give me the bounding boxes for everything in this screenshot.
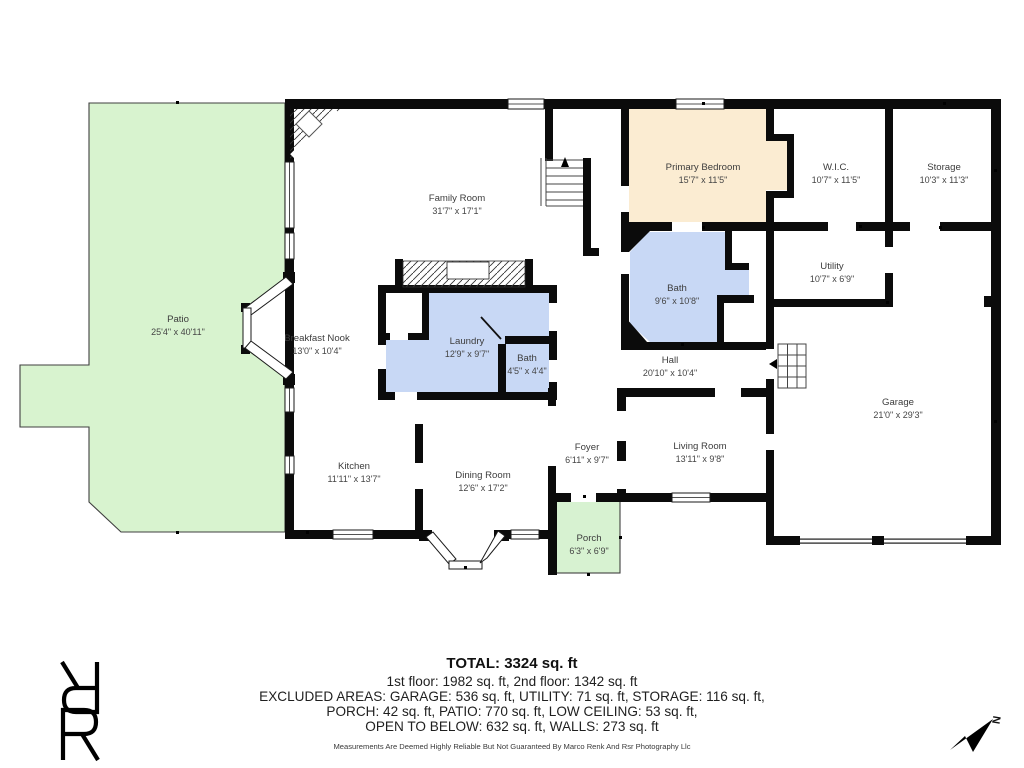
svg-text:9'6" x 10'8": 9'6" x 10'8": [655, 296, 699, 306]
room-wic: W.I.C.10'7" x 11'5": [812, 162, 861, 185]
floor-plan-page: Patio25'4" x 40'11" Family Room31'7" x 1…: [0, 0, 1024, 768]
svg-text:W.I.C.: W.I.C.: [823, 162, 849, 173]
window-icon: [511, 530, 539, 539]
garage-door: [800, 536, 966, 545]
summary-floors: 1st floor: 1982 sq. ft, 2nd floor: 1342 …: [387, 674, 638, 689]
summary-excluded-1: EXCLUDED AREAS: GARAGE: 536 sq. ft, UTIL…: [259, 689, 765, 704]
room-hall: Hall20'10" x 10'4": [643, 355, 697, 378]
svg-text:6'3" x 6'9": 6'3" x 6'9": [569, 546, 608, 556]
svg-text:Dining Room: Dining Room: [455, 470, 510, 481]
svg-text:Patio: Patio: [167, 314, 189, 325]
bay-window-icon: [426, 531, 505, 569]
svg-text:10'7" x 6'9": 10'7" x 6'9": [810, 274, 854, 284]
summary-excluded-3: OPEN TO BELOW: 632 sq. ft, WALLS: 273 sq…: [365, 719, 659, 734]
walls: [241, 99, 1001, 575]
svg-text:Foyer: Foyer: [575, 442, 600, 453]
svg-text:Hall: Hall: [662, 355, 679, 366]
stairs-up-arrow-icon: [561, 157, 569, 167]
svg-text:Utility: Utility: [820, 261, 844, 272]
svg-text:Laundry: Laundry: [450, 336, 485, 347]
fireplace-icon: [403, 261, 525, 287]
room-family-room: Family Room31'7" x 17'1": [429, 193, 486, 216]
svg-text:Living Room: Living Room: [673, 441, 726, 452]
svg-text:10'7" x 11'5": 10'7" x 11'5": [812, 175, 861, 185]
svg-text:Porch: Porch: [576, 533, 601, 544]
svg-text:12'9" x 9'7": 12'9" x 9'7": [445, 349, 489, 359]
svg-text:Garage: Garage: [882, 397, 914, 408]
stairs-main: [541, 157, 583, 206]
floor-plan-canvas: Patio25'4" x 40'11" Family Room31'7" x 1…: [0, 0, 1024, 768]
north-arrow-icon: [950, 719, 993, 752]
room-breakfast-nook: Breakfast Nook13'0" x 10'4": [284, 333, 350, 356]
svg-text:20'10" x 10'4": 20'10" x 10'4": [643, 368, 697, 378]
room-storage: Storage10'3" x 11'3": [920, 162, 969, 185]
window-icon: [285, 388, 294, 412]
svg-text:13'0" x 10'4": 13'0" x 10'4": [292, 346, 341, 356]
svg-text:11'11" x 13'7": 11'11" x 13'7": [327, 474, 380, 484]
summary-block: TOTAL: 3324 sq. ft 1st floor: 1982 sq. f…: [259, 655, 765, 751]
svg-text:10'3" x 11'3": 10'3" x 11'3": [920, 175, 969, 185]
svg-text:6'11" x 9'7": 6'11" x 9'7": [565, 455, 609, 465]
window-icon: [285, 456, 294, 474]
rr-logo: [61, 662, 99, 760]
svg-text:Bath: Bath: [517, 353, 537, 364]
svg-text:Family Room: Family Room: [429, 193, 486, 204]
svg-text:4'5" x 4'4": 4'5" x 4'4": [507, 366, 546, 376]
svg-text:13'11" x 9'8": 13'11" x 9'8": [676, 454, 725, 464]
svg-text:Primary Bedroom: Primary Bedroom: [666, 162, 741, 173]
svg-text:25'4" x 40'11": 25'4" x 40'11": [151, 327, 205, 337]
window-icon: [676, 99, 724, 109]
window-icon: [672, 493, 710, 502]
svg-text:Breakfast Nook: Breakfast Nook: [284, 333, 350, 344]
room-kitchen: Kitchen11'11" x 13'7": [327, 461, 380, 484]
window-icon: [333, 530, 373, 539]
svg-text:15'7" x 11'5": 15'7" x 11'5": [679, 175, 728, 185]
window-icon: [285, 233, 294, 259]
room-living-room: Living Room13'11" x 9'8": [673, 441, 726, 464]
low-ceiling-hatch: [290, 109, 341, 160]
window-icon: [508, 99, 544, 109]
summary-total: TOTAL: 3324 sq. ft: [446, 655, 577, 672]
svg-text:31'7" x 17'1": 31'7" x 17'1": [432, 206, 481, 216]
window-icon: [285, 162, 294, 228]
summary-disclaimer: Measurements Are Deemed Highly Reliable …: [333, 742, 690, 751]
room-dining-room: Dining Room12'6" x 17'2": [455, 470, 510, 493]
room-garage: Garage21'0" x 29'3": [873, 397, 922, 420]
svg-text:21'0" x 29'3": 21'0" x 29'3": [873, 410, 922, 420]
svg-text:Kitchen: Kitchen: [338, 461, 370, 472]
room-utility: Utility10'7" x 6'9": [810, 261, 854, 284]
summary-excluded-2: PORCH: 42 sq. ft, PATIO: 770 sq. ft, LOW…: [326, 704, 697, 719]
svg-text:Storage: Storage: [927, 162, 961, 173]
svg-text:Bath: Bath: [667, 283, 687, 294]
room-foyer: Foyer6'11" x 9'7": [565, 442, 609, 465]
compass: N: [950, 715, 1002, 752]
svg-text:12'6" x 17'2": 12'6" x 17'2": [458, 483, 507, 493]
north-label: N: [989, 715, 1002, 725]
